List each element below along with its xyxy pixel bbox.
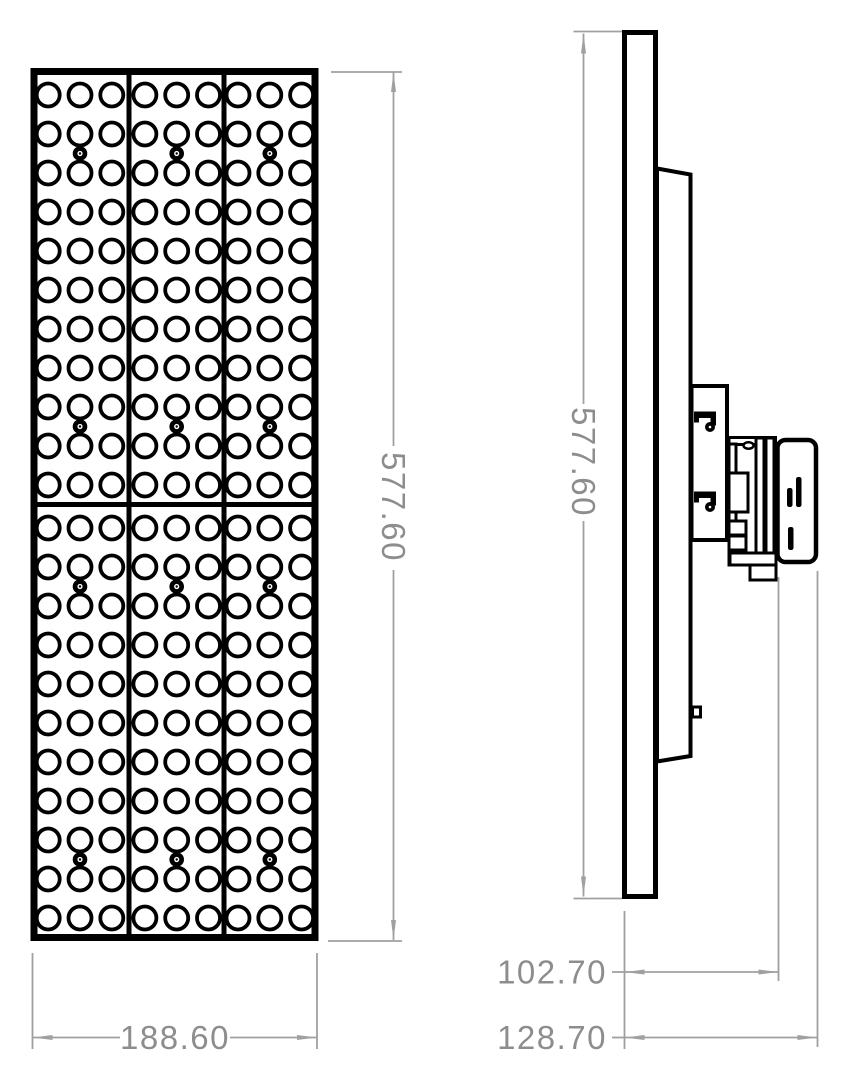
led-hole: [290, 357, 313, 380]
led-hole: [197, 279, 220, 302]
led-hole: [100, 123, 123, 146]
led-hole: [258, 474, 281, 497]
led-hole: [197, 712, 220, 735]
front-view: [34, 72, 315, 938]
led-hole: [258, 712, 281, 735]
led-hole: [69, 396, 92, 419]
screw: [263, 852, 278, 867]
dimension-value: 188.60: [120, 1019, 230, 1056]
screw: [169, 419, 184, 434]
led-hole: [290, 123, 313, 146]
frame-clip: [693, 707, 701, 717]
led-hole: [133, 474, 156, 497]
led-hole: [197, 318, 220, 341]
led-hole: [100, 595, 123, 618]
led-hole: [133, 712, 156, 735]
led-hole: [197, 435, 220, 458]
led-hole: [165, 907, 188, 930]
led-hole: [37, 240, 60, 263]
led-hole: [133, 790, 156, 813]
led-hole: [69, 673, 92, 696]
led-hole: [165, 84, 188, 107]
led-hole: [165, 634, 188, 657]
led-hole: [258, 556, 281, 579]
led-hole: [133, 751, 156, 774]
led-hole: [165, 357, 188, 380]
led-hole: [165, 279, 188, 302]
led-hole: [165, 673, 188, 696]
led-hole: [197, 84, 220, 107]
led-hole: [290, 556, 313, 579]
led-hole: [165, 751, 188, 774]
led-hole: [37, 634, 60, 657]
led-hole: [37, 201, 60, 224]
led-hole: [197, 240, 220, 263]
led-hole: [100, 279, 123, 302]
led-hole: [133, 201, 156, 224]
led-hole: [165, 517, 188, 540]
led-hole: [197, 396, 220, 419]
led-hole: [37, 396, 60, 419]
led-hole: [290, 712, 313, 735]
led-hole: [197, 673, 220, 696]
front-height-dimension: 577.60: [328, 72, 412, 941]
screw: [73, 579, 88, 594]
led-hole: [69, 790, 92, 813]
led-hole: [290, 279, 313, 302]
led-hole: [37, 279, 60, 302]
led-hole: [133, 673, 156, 696]
led-hole: [100, 357, 123, 380]
led-hole: [227, 790, 250, 813]
dimension-value: 128.70: [497, 1019, 607, 1056]
led-hole: [37, 474, 60, 497]
led-hole: [258, 868, 281, 891]
led-hole: [258, 123, 281, 146]
led-hole: [290, 318, 313, 341]
led-hole: [37, 357, 60, 380]
led-hole: [100, 829, 123, 852]
led-hole: [37, 907, 60, 930]
led-hole: [227, 829, 250, 852]
led-hole: [258, 790, 281, 813]
led-hole: [69, 634, 92, 657]
led-hole: [133, 595, 156, 618]
led-hole: [100, 907, 123, 930]
screw: [263, 146, 278, 161]
led-hole: [37, 712, 60, 735]
led-hole: [290, 201, 313, 224]
led-hole: [227, 673, 250, 696]
led-hole: [258, 751, 281, 774]
led-hole: [37, 868, 60, 891]
led-hole: [197, 162, 220, 185]
led-hole: [290, 435, 313, 458]
led-hole: [227, 318, 250, 341]
led-hole: [165, 595, 188, 618]
led-hole: [290, 474, 313, 497]
led-hole: [100, 712, 123, 735]
led-hole: [69, 868, 92, 891]
led-hole: [133, 829, 156, 852]
led-hole: [197, 790, 220, 813]
led-hole: [133, 868, 156, 891]
led-hole: [165, 829, 188, 852]
led-hole: [197, 357, 220, 380]
led-hole: [165, 868, 188, 891]
led-hole: [37, 435, 60, 458]
led-hole: [227, 868, 250, 891]
led-hole: [100, 556, 123, 579]
screw: [169, 852, 184, 867]
led-hole: [69, 474, 92, 497]
led-hole: [37, 751, 60, 774]
led-hole: [258, 435, 281, 458]
led-hole: [290, 634, 313, 657]
led-hole: [37, 162, 60, 185]
led-hole: [197, 634, 220, 657]
led-hole: [133, 318, 156, 341]
led-hole: [197, 907, 220, 930]
led-hole: [227, 556, 250, 579]
led-hole: [37, 556, 60, 579]
led-hole: [227, 751, 250, 774]
led-hole: [37, 517, 60, 540]
led-hole: [133, 634, 156, 657]
led-hole: [69, 318, 92, 341]
screw: [263, 579, 278, 594]
led-hole: [100, 868, 123, 891]
led-hole: [290, 162, 313, 185]
led-hole: [69, 279, 92, 302]
dimension-value: 577.60: [565, 407, 602, 517]
led-hole: [37, 595, 60, 618]
led-hole: [133, 84, 156, 107]
led-hole: [100, 474, 123, 497]
mount-plate: [692, 386, 728, 540]
led-hole: [69, 712, 92, 735]
bracket-rail: [729, 438, 776, 581]
led-hole: [227, 279, 250, 302]
led-hole: [100, 517, 123, 540]
led-hole: [100, 240, 123, 263]
dimension-value: 577.60: [375, 452, 412, 562]
led-hole: [69, 162, 92, 185]
led-hole: [258, 279, 281, 302]
led-hole: [258, 162, 281, 185]
led-hole: [69, 517, 92, 540]
led-hole: [165, 556, 188, 579]
led-hole: [133, 240, 156, 263]
dimension-value: 102.70: [497, 954, 607, 991]
side-height-dimension: 577.60: [565, 32, 622, 899]
led-hole: [69, 829, 92, 852]
led-hole: [165, 123, 188, 146]
led-hole: [37, 84, 60, 107]
led-hole: [133, 517, 156, 540]
screw: [73, 419, 88, 434]
technical-drawing: 577.60 188.60 577.60 102.70: [0, 0, 859, 1080]
led-hole: [227, 474, 250, 497]
led-hole: [227, 357, 250, 380]
led-hole: [37, 829, 60, 852]
led-hole: [165, 396, 188, 419]
led-hole: [37, 318, 60, 341]
front-width-dimension: 188.60: [33, 953, 318, 1056]
led-hole: [100, 162, 123, 185]
led-hole: [69, 751, 92, 774]
led-hole: [197, 556, 220, 579]
led-hole: [100, 673, 123, 696]
led-hole: [37, 790, 60, 813]
led-hole: [133, 556, 156, 579]
led-hole: [227, 634, 250, 657]
led-hole: [197, 123, 220, 146]
screw: [169, 579, 184, 594]
led-hole: [227, 517, 250, 540]
led-hole: [69, 907, 92, 930]
led-hole: [133, 907, 156, 930]
panel-profile: [625, 33, 656, 897]
led-hole: [197, 474, 220, 497]
led-hole: [133, 123, 156, 146]
led-hole: [197, 829, 220, 852]
led-hole: [69, 435, 92, 458]
led-hole: [258, 201, 281, 224]
led-hole: [290, 790, 313, 813]
led-hole: [165, 790, 188, 813]
led-hole: [133, 279, 156, 302]
led-hole: [100, 790, 123, 813]
led-hole: [197, 595, 220, 618]
led-hole: [258, 829, 281, 852]
led-hole: [227, 396, 250, 419]
led-hole: [290, 517, 313, 540]
led-hole: [258, 673, 281, 696]
led-hole: [258, 907, 281, 930]
led-hole: [258, 517, 281, 540]
screw: [169, 146, 184, 161]
led-hole: [100, 396, 123, 419]
led-hole: [227, 162, 250, 185]
frame-profile: [657, 169, 691, 762]
led-hole: [227, 84, 250, 107]
led-hole: [100, 634, 123, 657]
led-hole: [133, 162, 156, 185]
led-hole: [197, 201, 220, 224]
led-hole: [290, 868, 313, 891]
led-hole: [227, 240, 250, 263]
led-hole: [69, 84, 92, 107]
led-hole: [258, 396, 281, 419]
led-hole: [165, 162, 188, 185]
led-hole: [290, 751, 313, 774]
led-hole: [290, 396, 313, 419]
led-hole: [100, 201, 123, 224]
led-hole: [100, 318, 123, 341]
led-hole: [100, 435, 123, 458]
led-hole: [197, 868, 220, 891]
led-hole: [227, 435, 250, 458]
led-hole: [258, 357, 281, 380]
led-hole: [69, 240, 92, 263]
led-hole: [258, 240, 281, 263]
screw: [73, 852, 88, 867]
led-hole: [290, 595, 313, 618]
led-hole: [258, 84, 281, 107]
led-hole: [258, 634, 281, 657]
led-hole: [197, 751, 220, 774]
side-view: [625, 33, 817, 897]
led-hole: [290, 240, 313, 263]
led-hole: [197, 517, 220, 540]
led-hole: [258, 318, 281, 341]
led-hole: [165, 240, 188, 263]
led-hole: [37, 673, 60, 696]
led-hole: [227, 907, 250, 930]
led-hole: [69, 201, 92, 224]
led-hole: [133, 435, 156, 458]
led-hole: [290, 84, 313, 107]
led-hole: [69, 357, 92, 380]
screw: [73, 146, 88, 161]
led-hole: [227, 595, 250, 618]
led-hole: [227, 712, 250, 735]
led-hole: [69, 123, 92, 146]
led-hole: [290, 907, 313, 930]
led-hole: [227, 123, 250, 146]
led-hole: [165, 435, 188, 458]
led-hole: [165, 712, 188, 735]
led-hole: [133, 357, 156, 380]
screw: [263, 419, 278, 434]
led-hole: [165, 318, 188, 341]
led-hole: [290, 673, 313, 696]
led-hole: [227, 201, 250, 224]
led-hole: [100, 751, 123, 774]
led-hole: [37, 123, 60, 146]
drawing-page: 577.60 188.60 577.60 102.70: [0, 0, 859, 1080]
led-hole: [69, 595, 92, 618]
led-hole: [100, 84, 123, 107]
led-hole: [69, 556, 92, 579]
led-hole: [165, 474, 188, 497]
led-hole: [165, 201, 188, 224]
led-hole: [290, 829, 313, 852]
led-hole: [133, 396, 156, 419]
led-hole: [258, 595, 281, 618]
